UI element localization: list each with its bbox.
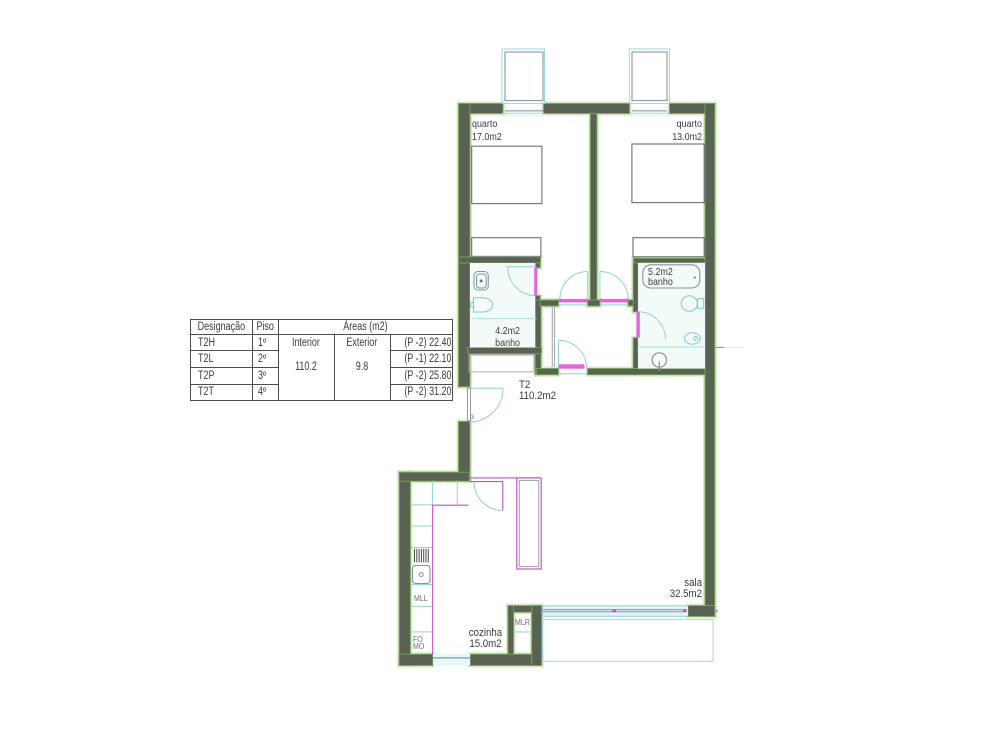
svg-text:3: 3 [471, 414, 475, 421]
